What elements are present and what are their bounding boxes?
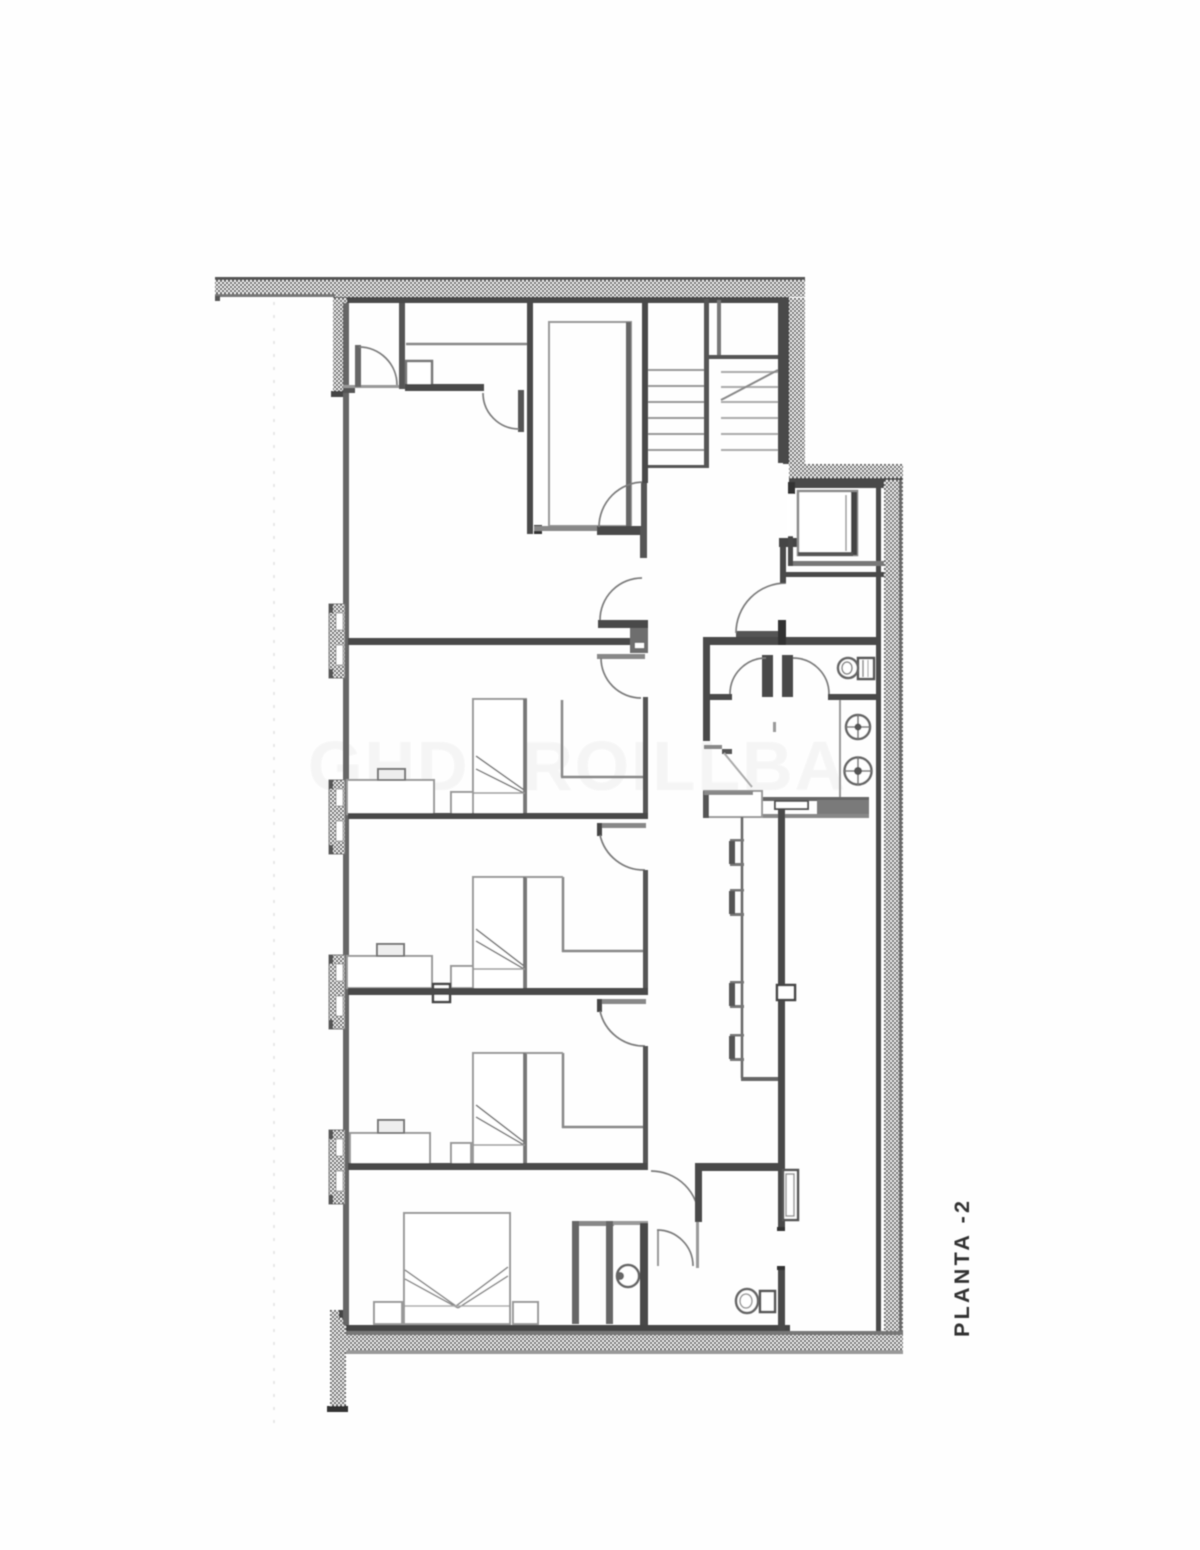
svg-text:PLANTA -2: PLANTA -2 (950, 1200, 974, 1337)
